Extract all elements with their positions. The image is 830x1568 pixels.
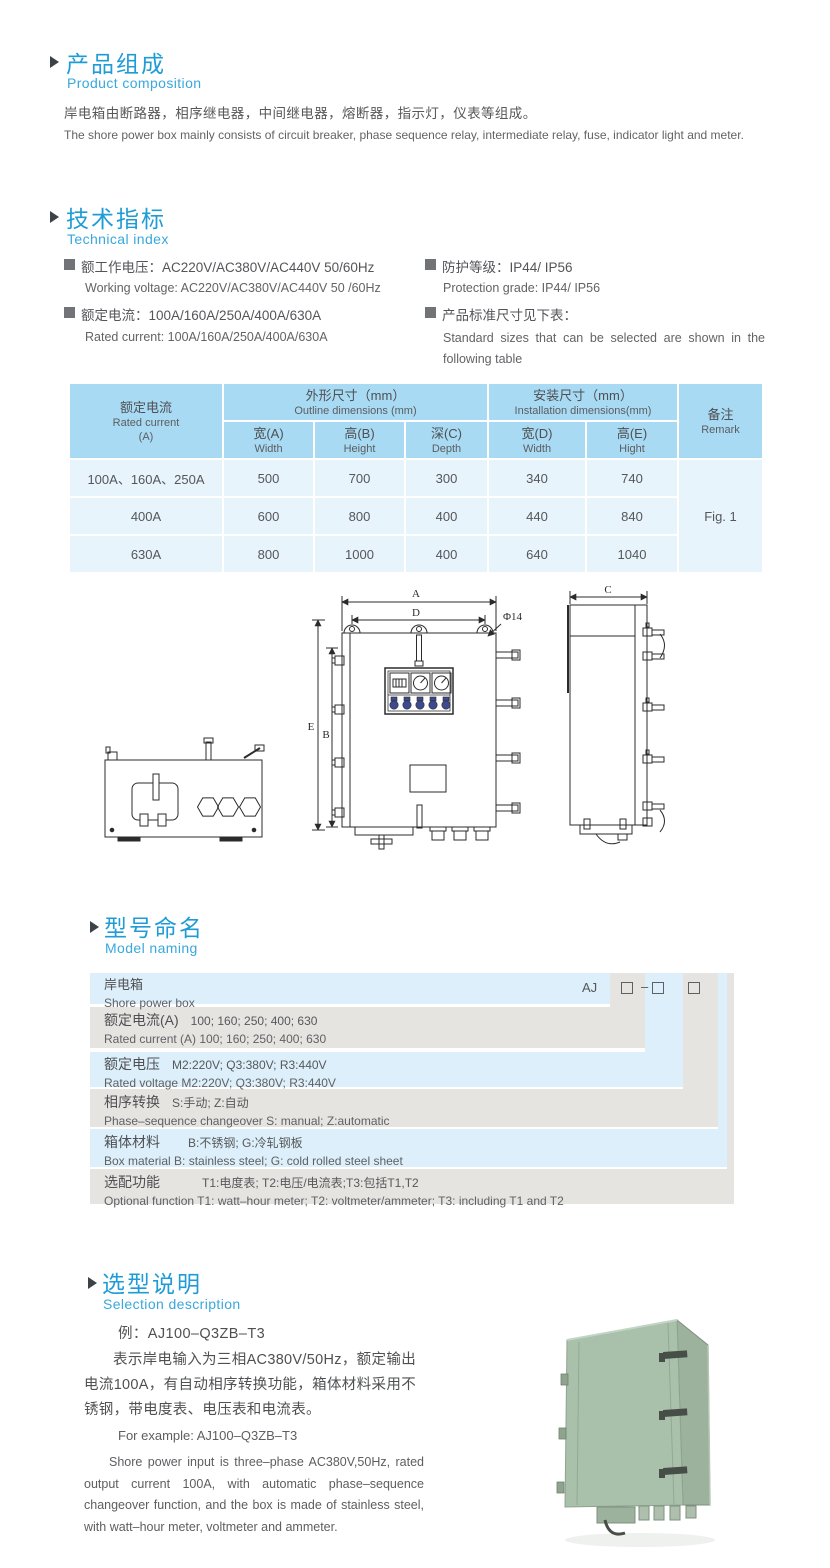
latch-bars: [496, 650, 520, 813]
technical-drawing: A D Φ14 E B C: [60, 578, 780, 888]
header-remark-cn: 备注: [679, 406, 762, 423]
table-subheader-width-d: 宽(D)Width: [489, 422, 585, 458]
section-subtitle-selection: Selection description: [103, 1296, 241, 1312]
table-header-install: 安装尺寸（mm） Installation dimensions(mm): [489, 384, 677, 420]
selection-example-en: For example: AJ100–Q3ZB–T3: [118, 1428, 297, 1443]
model-code-prefix: AJ: [582, 980, 597, 995]
spec-protection-en: Protection grade: IP44/ IP56: [443, 281, 600, 295]
selection-body-en: Shore power input is three–phase AC380V,…: [84, 1452, 424, 1538]
naming-row-label: 额定电流(A): [104, 1012, 179, 1028]
composition-body-cn: 岸电箱由断路器，相序继电器，中间继电器，熔断器，指示灯，仪表等组成。: [64, 102, 537, 122]
naming-row-value: S:手动; Z:自动: [172, 1096, 249, 1110]
naming-row: 额定电流(A)100; 160; 250; 400; 630 Rated cur…: [104, 1010, 326, 1048]
table-cell: 500: [224, 460, 313, 496]
table-cell: 440: [489, 498, 585, 534]
square-bullet-icon: [425, 259, 436, 270]
table-cell: 1040: [587, 536, 677, 572]
table-cell: 640: [489, 536, 585, 572]
composition-body-en: The shore power box mainly consists of c…: [64, 128, 744, 142]
naming-row: 额定电压M2:220V; Q3:380V; R3:440V Rated volt…: [104, 1054, 336, 1092]
spec-standard-sizes-cn: 产品标准尺寸见下表：: [442, 304, 577, 324]
section-marker-icon: [88, 1277, 97, 1289]
header-outline-en: Outline dimensions (mm): [224, 404, 487, 418]
dim-label-c: C: [604, 584, 611, 596]
table-cell: 800: [224, 536, 313, 572]
table-subheader-width-a: 宽(A)Width: [224, 422, 313, 458]
table-subheader-height-b: 高(B)Height: [315, 422, 404, 458]
naming-row-en: Shore power box: [104, 996, 195, 1010]
table-cell-current: 630A: [70, 536, 222, 572]
model-code-box: [621, 982, 633, 994]
selection-example-cn: 例：AJ100–Q3ZB–T3: [118, 1322, 265, 1343]
table-cell: 600: [224, 498, 313, 534]
table-cell-current: 100A、160A、250A: [70, 460, 222, 496]
selection-body-cn: 表示岸电输入为三相AC380V/50Hz，额定输出电流100A，有自动相序转换功…: [84, 1348, 416, 1423]
spec-protection-cn: 防护等级：IP44/ IP56: [442, 256, 573, 276]
naming-row-value: T1:电度表; T2:电压/电流表;T3:包括T1,T2: [202, 1176, 419, 1190]
header-current-unit: (A): [70, 430, 222, 444]
model-naming-table: 岸电箱 Shore power box 额定电流(A)100; 160; 250…: [90, 973, 734, 1204]
dim-label-d: D: [412, 607, 420, 619]
header-remark-en: Remark: [679, 423, 762, 437]
product-photo: [535, 1292, 827, 1564]
naming-row: 相序转换S:手动; Z:自动 Phase–sequence changeover…: [104, 1092, 390, 1130]
model-code-box: [688, 982, 700, 994]
table-row: 400A 600 800 400 440 840: [70, 498, 762, 534]
section-marker-icon: [50, 211, 59, 223]
header-install-cn: 安装尺寸（mm）: [489, 387, 677, 404]
table-subheader-depth-c: 深(C)Depth: [406, 422, 487, 458]
side-view: [568, 591, 665, 844]
naming-row-value: B:不锈钢; G:冷轧钢板: [188, 1136, 303, 1150]
naming-row-value: M2:220V; Q3:380V; R3:440V: [172, 1058, 327, 1072]
table-cell: 800: [315, 498, 404, 534]
section-title-composition: 产品组成: [66, 45, 166, 79]
table-subheader-hight-e: 高(E)Hight: [587, 422, 677, 458]
table-cell: 700: [315, 460, 404, 496]
section-marker-icon: [50, 56, 59, 68]
naming-row-label: 相序转换: [104, 1094, 160, 1110]
naming-row-en: Rated current (A) 100; 160; 250; 400; 63…: [104, 1032, 326, 1046]
header-current-cn: 额定电流: [70, 399, 222, 416]
front-view: [312, 596, 520, 849]
naming-row-label: 选配功能: [104, 1174, 160, 1190]
section-subtitle-naming: Model naming: [105, 940, 198, 956]
table-row: 100A、160A、250A 500 700 300 340 740 Fig. …: [70, 460, 762, 496]
section-title-selection: 选型说明: [102, 1265, 202, 1299]
header-outline-cn: 外形尺寸（mm）: [224, 387, 487, 404]
table-header-current: 额定电流 Rated current (A): [70, 384, 222, 458]
spec-standard-sizes-en: Standard sizes that can be selected are …: [443, 328, 765, 370]
section-subtitle-technical: Technical index: [67, 231, 169, 247]
naming-row-label: 岸电箱: [104, 977, 143, 992]
table-cell: 1000: [315, 536, 404, 572]
spec-working-voltage-en: Working voltage: AC220V/AC380V/AC440V 50…: [85, 281, 381, 295]
spec-rated-current-en: Rated current: 100A/160A/250A/400A/630A: [85, 330, 328, 344]
dim-label-a: A: [412, 588, 420, 600]
table-cell: 740: [587, 460, 677, 496]
spec-working-voltage-cn: 额工作电压：AC220V/AC380V/AC440V 50/60Hz: [81, 256, 374, 276]
datasheet-page: 产品组成 Product composition 岸电箱由断路器，相序继电器，中…: [0, 0, 830, 1568]
section-subtitle-composition: Product composition: [67, 75, 201, 91]
header-install-en: Installation dimensions(mm): [489, 404, 677, 418]
section-title-technical: 技术指标: [66, 200, 166, 234]
naming-row-en: Optional function T1: watt–hour meter; T…: [104, 1194, 564, 1208]
table-cell: 300: [406, 460, 487, 496]
square-bullet-icon: [64, 259, 75, 270]
table-cell: 340: [489, 460, 585, 496]
dim-label-e: E: [308, 721, 315, 733]
table-cell-remark: Fig. 1: [679, 460, 762, 572]
table-cell-current: 400A: [70, 498, 222, 534]
header-current-en: Rated current: [70, 416, 222, 430]
naming-row: 箱体材料B:不锈钢; G:冷轧钢板 Box material B: stainl…: [104, 1132, 403, 1170]
naming-row: 岸电箱 Shore power box: [104, 974, 195, 1012]
naming-row-label: 额定电压: [104, 1056, 160, 1072]
table-header-outline: 外形尺寸（mm） Outline dimensions (mm): [224, 384, 487, 420]
size-table: 额定电流 Rated current (A) 外形尺寸（mm） Outline …: [68, 382, 764, 574]
table-cell: 400: [406, 536, 487, 572]
table-row: 630A 800 1000 400 640 1040: [70, 536, 762, 572]
model-code-dash: –: [641, 979, 648, 994]
table-cell: 400: [406, 498, 487, 534]
section-title-naming: 型号命名: [104, 909, 204, 943]
dim-label-hole: Φ14: [503, 611, 523, 623]
square-bullet-icon: [64, 307, 75, 318]
naming-row-en: Box material B: stainless steel; G: cold…: [104, 1154, 403, 1168]
bottom-view: [105, 738, 264, 841]
naming-row-en: Phase–sequence changeover S: manual; Z:a…: [104, 1114, 390, 1128]
table-cell: 840: [587, 498, 677, 534]
naming-row: 选配功能T1:电度表; T2:电压/电流表;T3:包括T1,T2 Optiona…: [104, 1172, 564, 1210]
section-marker-icon: [90, 921, 99, 933]
square-bullet-icon: [425, 307, 436, 318]
dim-label-b: B: [322, 729, 329, 741]
table-header-remark: 备注 Remark: [679, 384, 762, 458]
naming-row-label: 箱体材料: [104, 1134, 160, 1150]
naming-row-value: 100; 160; 250; 400; 630: [191, 1014, 318, 1028]
naming-row-en: Rated voltage M2:220V; Q3:380V; R3:440V: [104, 1076, 336, 1090]
model-code-box: [652, 982, 664, 994]
spec-rated-current-cn: 额定电流：100A/160A/250A/400A/630A: [81, 304, 321, 324]
